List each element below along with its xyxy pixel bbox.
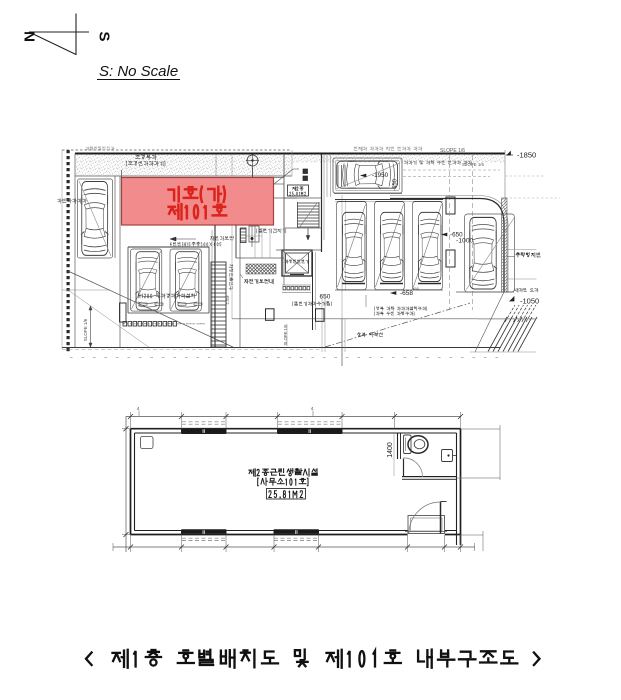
svg-text:2.5M: 2.5M [225,296,230,305]
svg-text:-1050: -1050 [520,297,539,306]
svg-text:658: 658 [412,286,419,291]
svg-text:S: S [96,31,113,41]
svg-text:SLOPE 1/6: SLOPE 1/6 [440,148,465,154]
svg-text:SLOPE 1/6: SLOPE 1/6 [462,162,485,167]
svg-text:1400: 1400 [387,442,394,458]
svg-text:N: N [21,31,38,42]
svg-text:-658: -658 [400,290,413,297]
svg-text:S: No Scale: S: No Scale [99,63,178,80]
svg-text:SLOPE 1/6: SLOPE 1/6 [83,318,88,341]
svg-text:-1950: -1950 [372,172,389,179]
svg-text:-1850: -1850 [517,151,536,160]
svg-text:-650: -650 [393,178,399,191]
